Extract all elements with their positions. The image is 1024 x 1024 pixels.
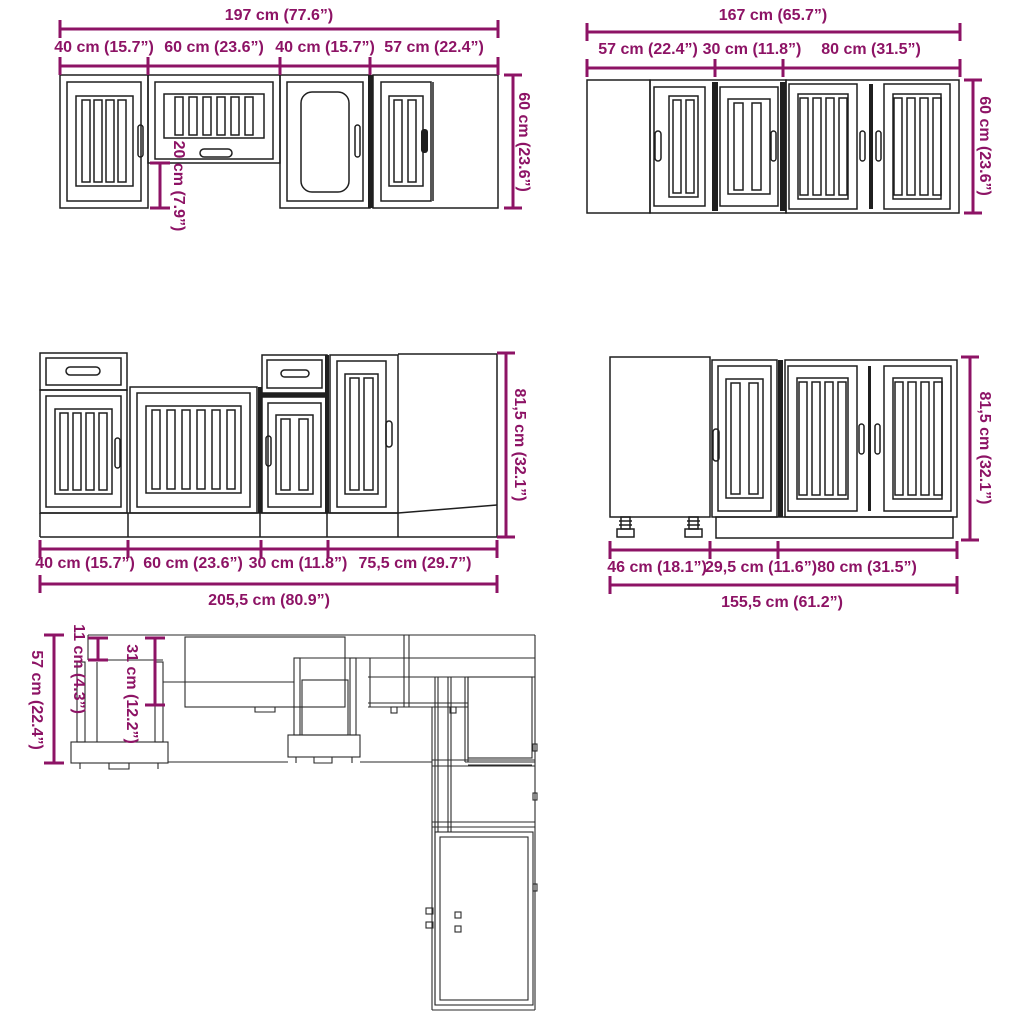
drawer-handle <box>281 370 309 377</box>
dim-label-wall-a-total: 197 cm (77.6”) <box>225 8 334 24</box>
dim-label-wall-a-seg2: 60 cm (23.6”) <box>164 40 264 56</box>
dim-label-wall-b-total: 167 cm (65.7”) <box>719 8 828 24</box>
wall-cabinet-top-view <box>185 637 345 707</box>
tall-door-top-view <box>435 832 533 1005</box>
door-handle <box>355 125 360 157</box>
kitchen-cabinet-dimension-diagram: 197 cm (77.6”) 40 cm (15.7”) 60 cm (23.6… <box>0 0 1024 1024</box>
dim-label-plan-depth: 57 cm (22.4”) <box>28 650 44 750</box>
door-handle <box>875 424 880 454</box>
dim-label-base-b-seg2: 29,5 cm (11.6”) <box>705 560 817 576</box>
wall-run-a-drawing <box>60 75 498 208</box>
open-drawer-front <box>71 742 168 763</box>
base-run-b-drawing <box>610 357 957 538</box>
dim-label-base-a-height: 81,5 cm (32.1”) <box>511 389 527 502</box>
dim-label-wall-b-seg1: 57 cm (22.4”) <box>598 42 698 58</box>
dim-label-wall-a-seg4: 57 cm (22.4”) <box>384 40 484 56</box>
door-handle <box>859 424 864 454</box>
door-handle <box>421 129 428 153</box>
drawer-handle <box>66 367 100 375</box>
diagram-canvas <box>0 0 1024 1024</box>
plan-view-drawing <box>71 635 537 1010</box>
dim-label-plan-small-depth: 11 cm (4.3”) <box>70 624 86 714</box>
glass-panel <box>301 92 349 192</box>
dim-label-wall-a-subheight: 20 cm (7.9”) <box>170 141 186 232</box>
door-handle <box>876 131 881 161</box>
wall-run-b-drawing <box>587 80 959 213</box>
open-drawer-front <box>288 735 360 757</box>
dim-label-wall-a-height: 60 cm (23.6”) <box>515 92 531 192</box>
dim-label-base-a-seg3: 30 cm (11.8”) <box>249 556 348 572</box>
plan-view-dimensions <box>44 635 165 763</box>
door-handle <box>860 131 865 161</box>
dim-label-base-a-total: 205,5 cm (80.9”) <box>208 593 330 609</box>
drawer-handle <box>200 149 232 157</box>
dim-label-base-b-total: 155,5 cm (61.2”) <box>721 595 843 611</box>
door-handle <box>771 131 776 161</box>
dim-label-base-b-seg3: 80 cm (31.5”) <box>817 560 917 576</box>
dim-label-base-b-seg1: 46 cm (18.1”) <box>607 560 707 576</box>
dim-label-wall-b-seg2: 30 cm (11.8”) <box>703 42 802 58</box>
dim-label-wall-a-seg1: 40 cm (15.7”) <box>54 40 154 56</box>
door-handle <box>655 131 661 161</box>
dim-label-wall-b-height: 60 cm (23.6”) <box>976 96 992 196</box>
dim-label-wall-a-seg3: 40 cm (15.7”) <box>275 40 375 56</box>
door-handle <box>386 421 392 447</box>
cabinet-feet <box>617 517 702 537</box>
door-handle <box>115 438 120 468</box>
dim-label-wall-b-seg3: 80 cm (31.5”) <box>821 42 921 58</box>
plinth <box>716 517 953 538</box>
dim-label-base-a-seg1: 40 cm (15.7”) <box>35 556 135 572</box>
dim-label-base-b-height: 81,5 cm (32.1”) <box>976 392 992 505</box>
dim-label-base-a-seg4: 75,5 cm (29.7”) <box>359 556 472 572</box>
dim-label-base-a-seg2: 60 cm (23.6”) <box>143 556 243 572</box>
base-run-a-drawing <box>40 353 497 537</box>
dim-label-plan-mid-depth: 31 cm (12.2”) <box>123 644 139 744</box>
